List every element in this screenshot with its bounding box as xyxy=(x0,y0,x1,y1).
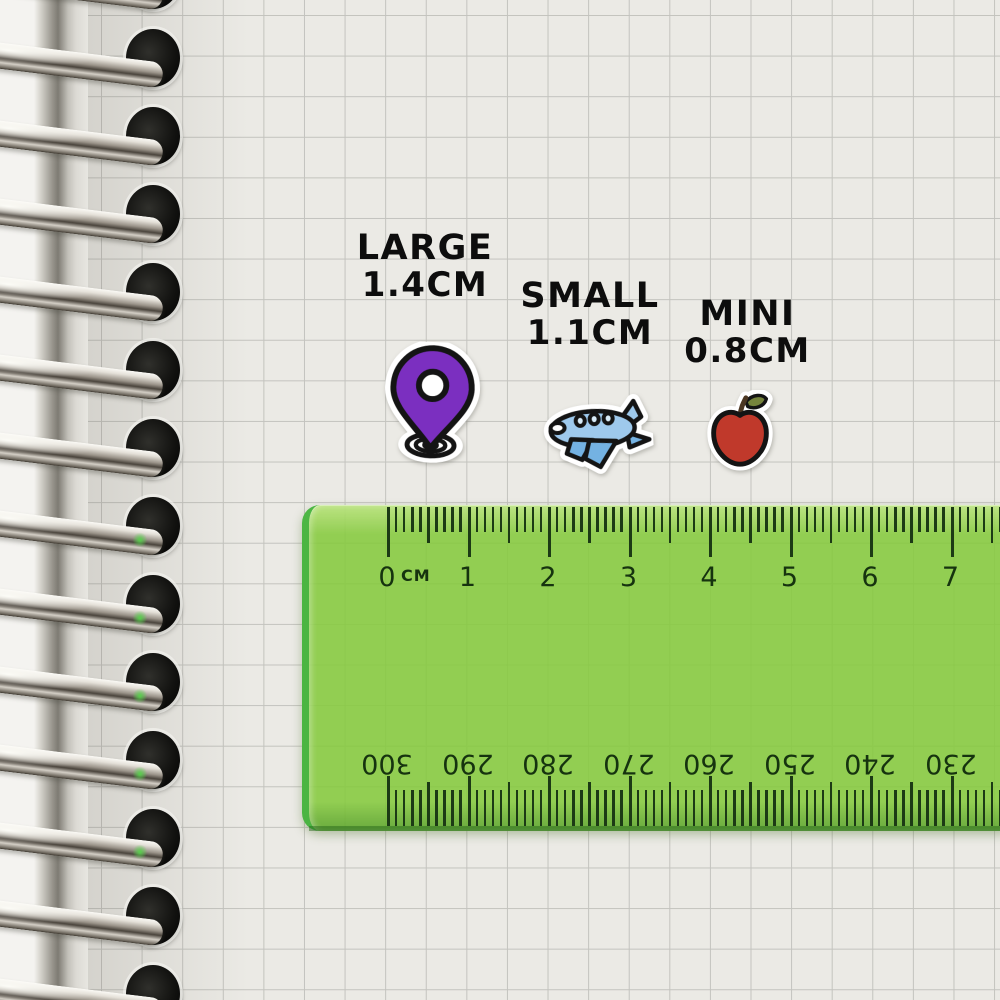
ruler-tick-top xyxy=(500,507,502,532)
ruler-tick-top xyxy=(653,507,655,532)
spiral-ring xyxy=(0,721,200,799)
ruler-tick-bottom xyxy=(572,790,574,826)
ruler-reflection-glint xyxy=(132,687,148,705)
ruler-tick-top xyxy=(951,507,954,557)
ruler-tick-top xyxy=(451,507,453,532)
ruler-tick-top xyxy=(596,507,598,532)
ruler-mm-number: 250 xyxy=(764,748,816,779)
ruler-tick-top xyxy=(918,507,920,532)
ruler-tick-bottom xyxy=(387,776,390,826)
ruler-tick-bottom xyxy=(661,790,663,826)
ruler-tick-bottom xyxy=(620,790,622,826)
label-large-title: LARGE xyxy=(330,230,520,267)
ruler-tick-top xyxy=(846,507,848,532)
ruler-tick-bottom xyxy=(508,782,510,826)
spiral-ring xyxy=(0,877,200,955)
ruler-cm-number: 0 xyxy=(378,562,395,593)
ruler-tick-bottom xyxy=(798,790,800,826)
ruler-tick-top xyxy=(765,507,767,532)
ruler-tick-bottom xyxy=(854,790,856,826)
ruler-reflection-glint xyxy=(132,843,148,861)
ruler-cm-number: 1 xyxy=(459,562,476,593)
ruler-tick-bottom xyxy=(749,782,751,826)
ruler-cm-number: 3 xyxy=(620,562,637,593)
spiral-ring xyxy=(0,799,200,877)
ruler-tick-top xyxy=(967,507,969,532)
ruler-tick-top xyxy=(427,507,429,543)
ruler-reflection-glint xyxy=(132,765,148,783)
ruler-tick-top xyxy=(934,507,936,532)
ruler-mm-number: 260 xyxy=(683,748,735,779)
ruler-tick-top xyxy=(459,507,461,532)
ruler-mm-number: 290 xyxy=(442,748,494,779)
ruler-tick-bottom xyxy=(516,790,518,826)
ruler-tick-bottom xyxy=(918,790,920,826)
label-large: LARGE 1.4CM xyxy=(330,230,520,304)
ruler-tick-top xyxy=(822,507,824,532)
notebook-photo: LARGE 1.4CM SMALL 1.1CM MINI 0.8CM xyxy=(0,0,1000,1000)
ruler-tick-bottom xyxy=(564,790,566,826)
ruler-tick-top xyxy=(612,507,614,532)
ruler-tick-bottom xyxy=(612,790,614,826)
ruler-tick-bottom xyxy=(781,790,783,826)
plane-window xyxy=(603,413,613,423)
ruler-tick-top xyxy=(781,507,783,532)
ruler-tick-bottom xyxy=(645,790,647,826)
ruler-tick-bottom xyxy=(540,790,542,826)
ruler-tick-top xyxy=(959,507,961,532)
ruler-tick-top xyxy=(806,507,808,532)
ruler-tick-bottom xyxy=(765,790,767,826)
spiral-ring xyxy=(0,331,200,409)
ruler-tick-bottom xyxy=(741,790,743,826)
ruler-tick-bottom xyxy=(975,790,977,826)
ruler-tick-top xyxy=(484,507,486,532)
ruler-reflection-glint xyxy=(132,609,148,627)
ruler-tick-bottom xyxy=(773,790,775,826)
ruler-tick-top xyxy=(476,507,478,532)
ruler-tick-bottom xyxy=(846,790,848,826)
ruler-tick-top xyxy=(709,507,712,557)
ruler-tick-bottom xyxy=(443,790,445,826)
ruler-tick-bottom xyxy=(588,782,590,826)
ruler-tick-top xyxy=(564,507,566,532)
ruler-tick-top xyxy=(492,507,494,532)
ruler-tick-bottom xyxy=(814,790,816,826)
ruler-tick-bottom xyxy=(629,776,632,826)
label-large-size: 1.4CM xyxy=(330,267,520,304)
label-mini-title: MINI xyxy=(655,296,840,333)
ruler-tick-top xyxy=(838,507,840,532)
ruler-mm-number: 240 xyxy=(844,748,896,779)
ruler-tick-top xyxy=(669,507,671,543)
ruler-tick-bottom xyxy=(806,790,808,826)
ruler-tick-bottom xyxy=(790,776,793,826)
ruler-tick-top xyxy=(701,507,703,532)
ruler-tick-bottom xyxy=(492,790,494,826)
ruler-tick-top xyxy=(620,507,622,532)
ruler-tick-bottom xyxy=(459,790,461,826)
ruler-tick-bottom xyxy=(484,790,486,826)
ruler-tick-bottom xyxy=(951,776,954,826)
ruler-tick-top xyxy=(572,507,574,532)
ruler-tick-top xyxy=(580,507,582,532)
ruler-tick-top xyxy=(516,507,518,532)
ruler-tick-top xyxy=(942,507,944,532)
ruler-tick-bottom xyxy=(580,790,582,826)
ruler-mm-number: 280 xyxy=(522,748,574,779)
ruler-tick-bottom xyxy=(532,790,534,826)
ruler-bottom-bevel xyxy=(309,826,1000,831)
ruler-tick-top xyxy=(975,507,977,532)
ruler-tick-bottom xyxy=(427,782,429,826)
ruler-tick-bottom xyxy=(669,782,671,826)
ruler-tick-top xyxy=(830,507,832,543)
ruler-tick-top xyxy=(556,507,558,532)
ruler-tick-top xyxy=(814,507,816,532)
ruler-tick-bottom xyxy=(596,790,598,826)
spiral-ring xyxy=(0,409,200,487)
label-mini: MINI 0.8CM xyxy=(655,296,840,370)
ruler-tick-bottom xyxy=(685,790,687,826)
ruler-tick-top xyxy=(661,507,663,532)
spiral-ring xyxy=(0,253,200,331)
ruler-tick-bottom xyxy=(910,782,912,826)
ruler-unit-label: CM xyxy=(401,566,431,585)
ruler-tick-top xyxy=(886,507,888,532)
ruler-tick-bottom xyxy=(942,790,944,826)
ruler-tick-bottom xyxy=(411,790,413,826)
spiral-ring xyxy=(0,565,200,643)
ruler-tick-top xyxy=(637,507,639,532)
ruler-tick-bottom xyxy=(403,790,405,826)
spiral-ring xyxy=(0,97,200,175)
ruler-tick-top xyxy=(685,507,687,532)
ruler-tick-bottom xyxy=(500,790,502,826)
ruler-tick-top xyxy=(532,507,534,532)
ruler-tick-top xyxy=(435,507,437,532)
apple-body xyxy=(714,412,767,464)
ruler-tick-bottom xyxy=(838,790,840,826)
ruler-tick-top xyxy=(733,507,735,532)
ruler-tick-top xyxy=(443,507,445,532)
location-pin-sticker xyxy=(381,340,483,466)
ruler-tick-bottom xyxy=(886,790,888,826)
ruler-tick-top xyxy=(540,507,542,532)
label-mini-size: 0.8CM xyxy=(655,333,840,370)
ruler-cm-number: 5 xyxy=(781,562,798,593)
ruler-tick-top xyxy=(991,507,993,543)
ruler-tick-top xyxy=(773,507,775,532)
ruler-tick-top xyxy=(645,507,647,532)
ruler-tick-top xyxy=(468,507,471,557)
ruler-tick-top xyxy=(878,507,880,532)
plane-window xyxy=(589,414,599,424)
ruler-tick-bottom xyxy=(822,790,824,826)
ruler-tick-bottom xyxy=(701,790,703,826)
ruler-tick-top xyxy=(411,507,413,532)
ruler-tick-top xyxy=(395,507,397,532)
ruler-tick-bottom xyxy=(709,776,712,826)
ruler-tick-bottom xyxy=(677,790,679,826)
ruler-tick-top xyxy=(749,507,751,543)
ruler-cm-number: 6 xyxy=(861,562,878,593)
ruler-tick-bottom xyxy=(435,790,437,826)
ruler-tick-bottom xyxy=(548,776,551,826)
ruler-tick-top xyxy=(725,507,727,532)
ruler-tick-bottom xyxy=(725,790,727,826)
plane-window xyxy=(575,416,585,426)
ruler-tick-top xyxy=(741,507,743,532)
ruler-tick-bottom xyxy=(693,790,695,826)
spiral-ring xyxy=(0,955,200,1000)
ruler-tick-bottom xyxy=(894,790,896,826)
ruler-tick-top xyxy=(508,507,510,543)
ruler-tick-bottom xyxy=(967,790,969,826)
ruler-tick-top xyxy=(798,507,800,532)
ruler-tick-bottom xyxy=(653,790,655,826)
ruler-tick-bottom xyxy=(395,790,397,826)
ruler-tick-top xyxy=(894,507,896,532)
ruler-tick-bottom xyxy=(757,790,759,826)
ruler-tick-top xyxy=(790,507,793,557)
airplane-sticker xyxy=(539,393,655,477)
spiral-ring xyxy=(0,643,200,721)
ruler-tick-bottom xyxy=(524,790,526,826)
ruler-tick-bottom xyxy=(926,790,928,826)
ruler-cm-number: 4 xyxy=(700,562,717,593)
ruler-tick-top xyxy=(604,507,606,532)
spiral-ring xyxy=(0,175,200,253)
ruler-tick-bottom xyxy=(991,782,993,826)
ruler-cm-number: 2 xyxy=(539,562,556,593)
ruler-tick-top xyxy=(757,507,759,532)
ruler-tick-top xyxy=(677,507,679,532)
binding-wire xyxy=(0,0,164,11)
ruler-tick-top xyxy=(862,507,864,532)
spiral-ring xyxy=(0,487,200,565)
ruler-tick-bottom xyxy=(878,790,880,826)
ruler-tick-bottom xyxy=(902,790,904,826)
spiral-ring xyxy=(0,0,200,19)
ruler-tick-top xyxy=(902,507,904,532)
ruler-tick-top xyxy=(629,507,632,557)
ruler-reflection-glint xyxy=(132,531,148,549)
ruler-tick-bottom xyxy=(983,790,985,826)
spiral-ring xyxy=(0,19,200,97)
pin-hole xyxy=(418,371,446,399)
ruler-mm-number: 270 xyxy=(603,748,655,779)
ruler-mm-number: 300 xyxy=(361,748,413,779)
ruler-tick-bottom xyxy=(556,790,558,826)
ruler-tick-top xyxy=(419,507,421,532)
ruler-tick-top xyxy=(693,507,695,532)
apple-leaf xyxy=(746,395,767,407)
ruler-tick-top xyxy=(870,507,873,557)
ruler-tick-bottom xyxy=(419,790,421,826)
ruler-tick-top xyxy=(524,507,526,532)
ruler-tick-top xyxy=(403,507,405,532)
plane-cockpit-window xyxy=(550,423,565,434)
ruler-tick-top xyxy=(910,507,912,543)
ruler-tick-bottom xyxy=(468,776,471,826)
ruler-mm-number: 230 xyxy=(925,748,977,779)
ruler-tick-top xyxy=(983,507,985,532)
ruler-tick-bottom xyxy=(451,790,453,826)
ruler-tick-top xyxy=(548,507,551,557)
ruler-tick-bottom xyxy=(870,776,873,826)
ruler-tick-bottom xyxy=(717,790,719,826)
ruler-tick-bottom xyxy=(604,790,606,826)
ruler-cm-number: 7 xyxy=(942,562,959,593)
ruler-tick-bottom xyxy=(934,790,936,826)
ruler-tick-top xyxy=(588,507,590,543)
ruler-tick-top xyxy=(926,507,928,532)
ruler-tick-top xyxy=(387,507,390,557)
ruler-tick-bottom xyxy=(830,782,832,826)
ruler-tick-top xyxy=(854,507,856,532)
ruler-tick-bottom xyxy=(476,790,478,826)
ruler-tick-top xyxy=(717,507,719,532)
ruler: 01234567 300290280270260250240230 CM xyxy=(302,505,1000,831)
ruler-tick-bottom xyxy=(733,790,735,826)
ruler-tick-bottom xyxy=(637,790,639,826)
ruler-tick-bottom xyxy=(959,790,961,826)
apple-sticker xyxy=(701,390,779,472)
ruler-tick-bottom xyxy=(862,790,864,826)
